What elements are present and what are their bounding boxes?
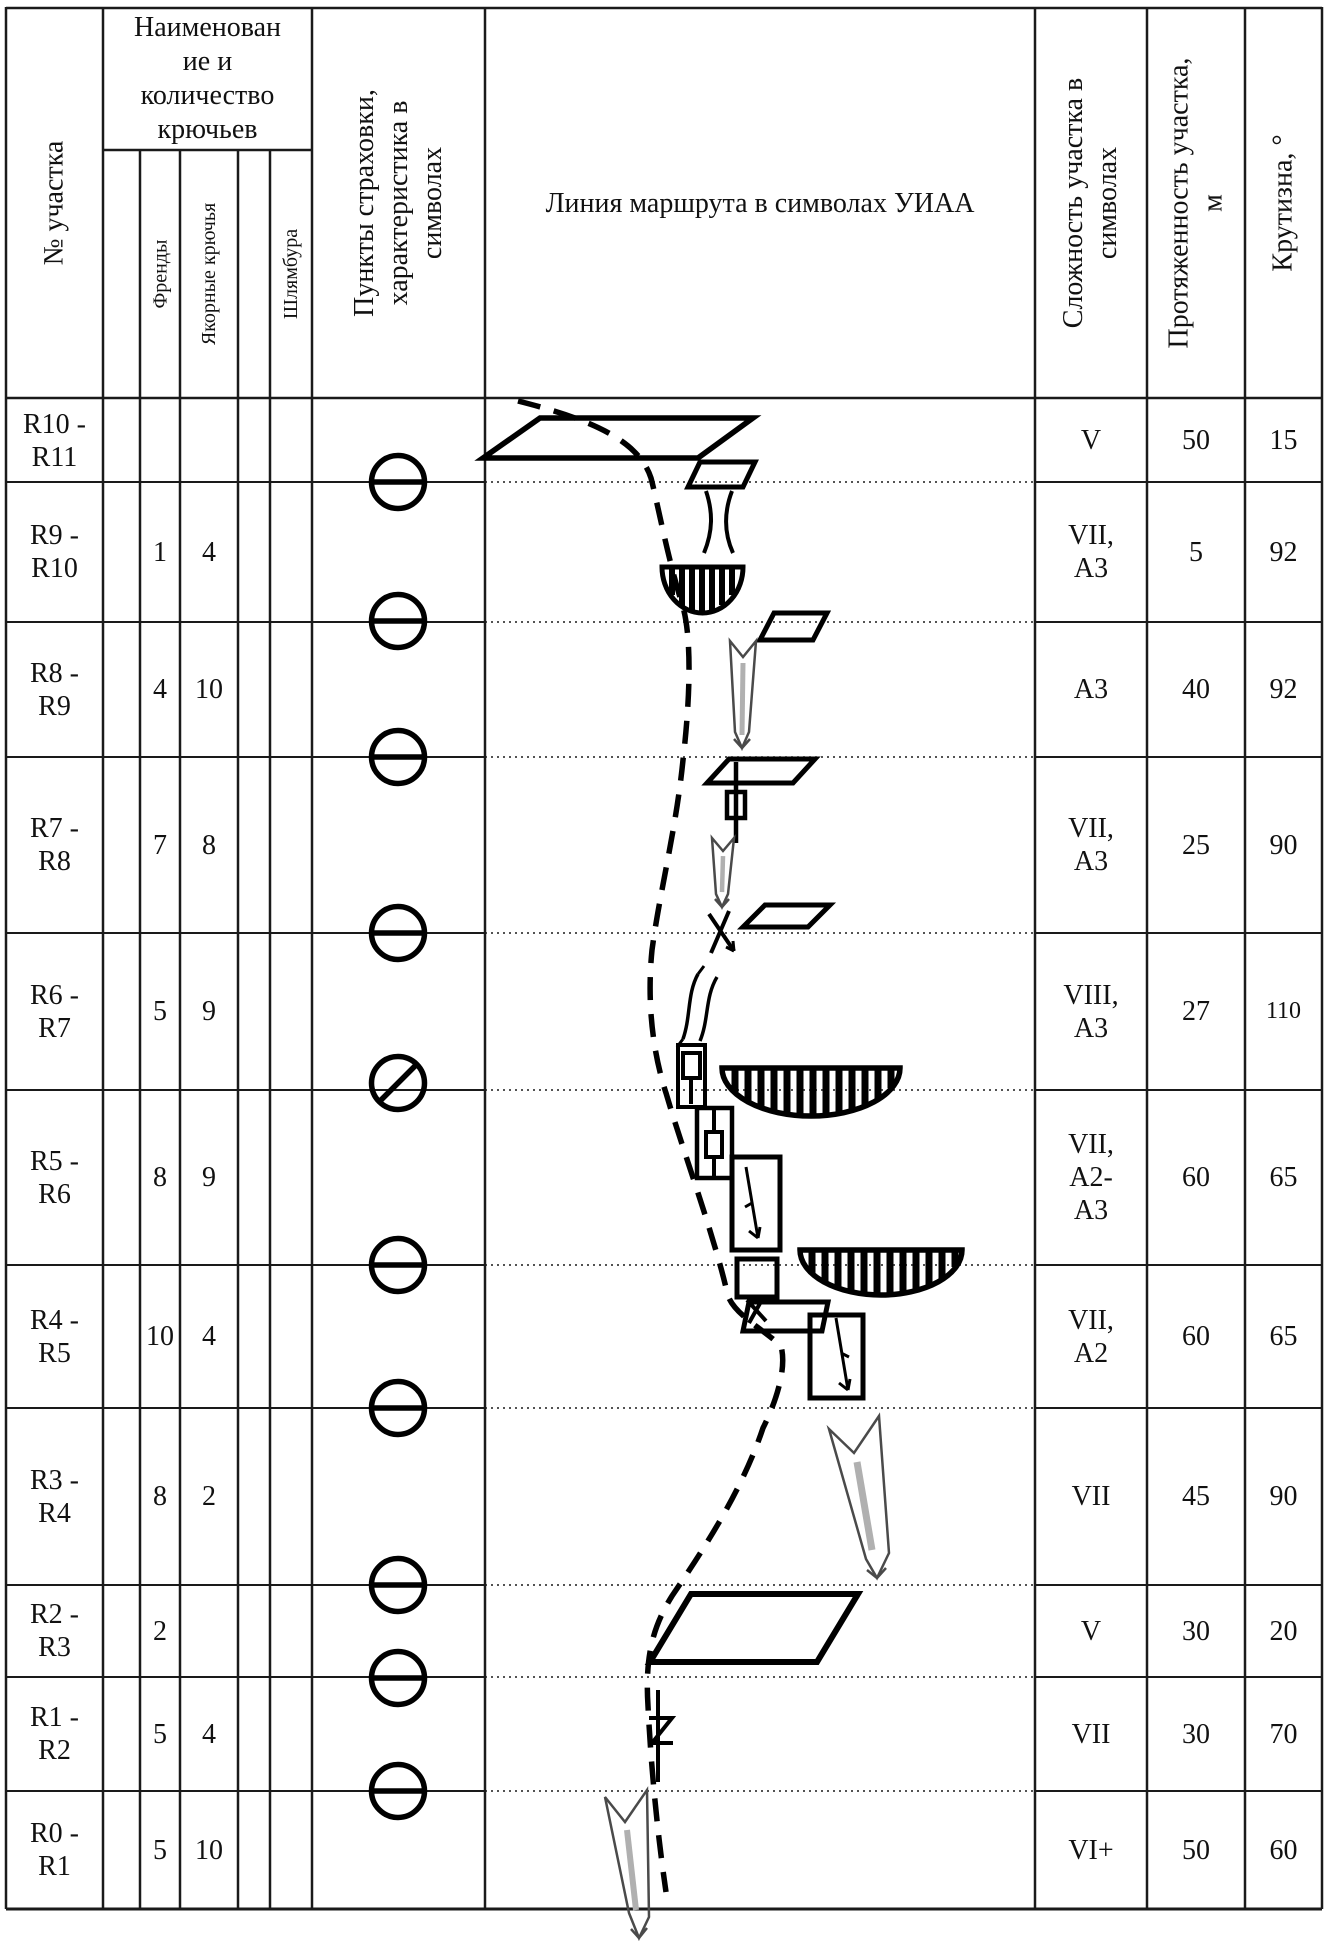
cell-difficulty: V	[1037, 399, 1145, 482]
narrowing-crack-symbol-2	[677, 966, 717, 1047]
ledge-symbol-5	[743, 905, 830, 927]
cell-section: R1 - R2	[7, 1678, 102, 1790]
cell-length: 40	[1149, 623, 1243, 756]
header-steepness-col: Крутизна, °	[1246, 9, 1321, 397]
belay-stations	[370, 456, 426, 1818]
cell-steepness: 90	[1247, 758, 1320, 932]
header-anchors-label: Якорные крючья	[198, 203, 220, 345]
cell-length: 25	[1149, 758, 1243, 932]
cell-difficulty: VII, A2- A3	[1037, 1091, 1145, 1264]
inclined-crack-box-symbol-2	[810, 1315, 863, 1398]
cell-difficulty: VII, A3	[1037, 483, 1145, 621]
rappel-arrow-symbol-1	[829, 1416, 889, 1578]
header-section-col: № участка	[7, 9, 102, 397]
cell-length: 5	[1149, 483, 1243, 621]
header-subcol-anchors: Якорные крючья	[181, 151, 237, 397]
header-steepness-label: Крутизна, °	[1267, 134, 1301, 271]
header-difficulty-col: Сложность участка в символах	[1036, 9, 1146, 397]
header-gear-group: Наименован ие и количество крючьев	[104, 9, 311, 149]
route-topo-table: № участка Наименован ие и количество крю…	[0, 0, 1339, 1949]
header-length-label: Протяженность участка, м	[1162, 58, 1230, 349]
cell-section: R0 - R1	[7, 1792, 102, 1908]
roof-overhang-symbol-3	[800, 1250, 962, 1295]
header-subcol-friends: Френды	[141, 151, 179, 397]
crack-arrow-symbol-1	[730, 641, 756, 748]
cell-length: 30	[1149, 1678, 1243, 1790]
belay-station-icon	[370, 1765, 426, 1818]
cell-section: R9 - R10	[7, 483, 102, 621]
cell-length: 27	[1149, 934, 1243, 1089]
cell-difficulty: VII	[1037, 1678, 1145, 1790]
rappel-arrow-symbol-2	[605, 1790, 649, 1938]
cell-anchors: 4	[182, 483, 236, 621]
header-route-col: Линия маршрута в символах УИАА	[486, 9, 1034, 397]
ledge-symbol-7	[650, 1594, 858, 1662]
ledge-symbol-4	[707, 759, 815, 783]
cell-steepness: 20	[1247, 1586, 1320, 1676]
cell-friends: 5	[145, 934, 175, 1089]
ledge-symbol-3	[760, 613, 827, 640]
belay-station-icon	[370, 731, 426, 784]
belay-station-icon	[370, 1239, 426, 1292]
uiaa-symbols	[483, 418, 962, 1938]
belay-station-icon	[370, 595, 426, 648]
header-difficulty-label: Сложность участка в символах	[1057, 78, 1125, 328]
belay-station-icon	[370, 1559, 426, 1612]
cell-anchors: 8	[182, 758, 236, 932]
cell-difficulty: V	[1037, 1586, 1145, 1676]
cell-anchors: 9	[182, 1091, 236, 1264]
cell-length: 30	[1149, 1586, 1243, 1676]
cell-difficulty: VII	[1037, 1409, 1145, 1584]
belay-station-icon	[370, 1652, 426, 1705]
cell-friends: 10	[145, 1266, 175, 1407]
cell-difficulty: VIII, A3	[1037, 934, 1145, 1089]
cell-steepness: 90	[1247, 1409, 1320, 1584]
cell-difficulty: VII, A2	[1037, 1266, 1145, 1407]
cell-steepness: 65	[1247, 1266, 1320, 1407]
ledge-symbol-1	[483, 418, 753, 458]
cell-anchors: 2	[182, 1409, 236, 1584]
cell-section: R4 - R5	[7, 1266, 102, 1407]
cell-section: R7 - R8	[7, 758, 102, 932]
cell-difficulty: A3	[1037, 623, 1145, 756]
cell-friends: 5	[145, 1678, 175, 1790]
cell-section: R2 - R3	[7, 1586, 102, 1676]
cell-steepness: 65	[1247, 1091, 1320, 1264]
cell-steepness: 70	[1247, 1678, 1320, 1790]
crack-arrow-symbol-2	[712, 838, 734, 907]
cell-section: R8 - R9	[7, 623, 102, 756]
cell-anchors	[182, 1586, 236, 1676]
header-belay-col: Пункты страховки, характеристика в симво…	[313, 9, 484, 397]
cell-difficulty: VII, A3	[1037, 758, 1145, 932]
cell-section: R5 - R6	[7, 1091, 102, 1264]
cell-section: R3 - R4	[7, 1409, 102, 1584]
header-length-col: Протяженность участка, м	[1148, 9, 1244, 397]
cell-steepness: 60	[1247, 1792, 1320, 1908]
header-friends-label: Френды	[149, 240, 171, 309]
header-belay-label: Пункты страховки, характеристика в симво…	[348, 89, 450, 317]
roof-overhang-symbol-2	[722, 1068, 900, 1116]
route-dashed-line-icon	[518, 401, 783, 1892]
cell-anchors: 4	[182, 1266, 236, 1407]
header-subcol-bolts: Шлямбура	[271, 151, 311, 397]
narrowing-crack-symbol-1	[704, 491, 733, 553]
cell-length: 50	[1149, 1792, 1243, 1908]
cell-section: R6 - R7	[7, 934, 102, 1089]
cell-steepness: 15	[1247, 399, 1320, 482]
cell-steepness: 92	[1247, 623, 1320, 756]
piton-box-symbol-2	[697, 1108, 732, 1178]
cell-anchors: 10	[182, 1792, 236, 1908]
cross-crack-symbol-1	[709, 911, 734, 953]
cell-friends: 7	[145, 758, 175, 932]
cell-friends: 4	[145, 623, 175, 756]
cell-anchors: 9	[182, 934, 236, 1089]
belay-station-icon	[370, 1382, 426, 1435]
inclined-crack-box-symbol-1	[732, 1157, 780, 1250]
ledge-symbol-2	[688, 462, 755, 487]
cell-friends: 8	[145, 1409, 175, 1584]
cell-friends: 2	[145, 1586, 175, 1676]
piton-box-symbol-1	[678, 1045, 705, 1107]
cell-length: 60	[1149, 1091, 1243, 1264]
cell-anchors: 10	[182, 623, 236, 756]
cell-friends: 1	[145, 483, 175, 621]
belay-station-diagonal-icon	[372, 1057, 425, 1110]
cell-difficulty: VI+	[1037, 1792, 1145, 1908]
belay-station-icon	[370, 907, 426, 960]
chockstone-symbol	[727, 762, 745, 843]
roof-overhang-symbol-1	[662, 567, 743, 613]
cell-friends: 8	[145, 1091, 175, 1264]
cell-length: 45	[1149, 1409, 1243, 1584]
header-section-label: № участка	[38, 141, 72, 266]
header-bolts-label: Шлямбура	[280, 229, 302, 319]
belay-station-icon	[370, 456, 426, 509]
cell-steepness: 92	[1247, 483, 1320, 621]
cell-anchors: 4	[182, 1678, 236, 1790]
cell-steepness: 110	[1247, 934, 1320, 1089]
cell-length: 50	[1149, 399, 1243, 482]
cell-section: R10 - R11	[7, 399, 102, 482]
cell-friends: 5	[145, 1792, 175, 1908]
cell-length: 60	[1149, 1266, 1243, 1407]
